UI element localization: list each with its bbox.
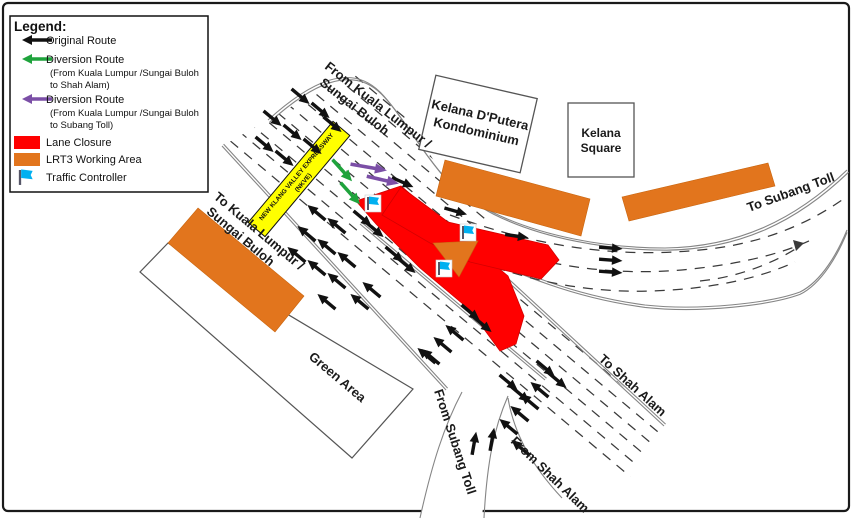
kelana-square-building: Kelana Square: [568, 103, 634, 177]
legend-working-area: LRT3 Working Area: [46, 154, 142, 166]
legend: Legend: Original Route Diversion Route (…: [10, 16, 208, 192]
svg-text:Square: Square: [581, 141, 622, 155]
traffic-controller-flag: [365, 195, 381, 212]
legend-diversion-subang-sub1: (From Kuala Lumpur /Sungai Buloh: [50, 108, 199, 119]
legend-diversion-shah-sub2: to Shah Alam): [50, 80, 110, 91]
traffic-arrows-to-subang: [599, 242, 623, 277]
traffic-diversion-diagram: Green Area NEW KLANG VALLEY EXPRESSWAY (…: [0, 0, 855, 520]
legend-lane-closure: Lane Closure: [46, 137, 111, 149]
lane-closure-swatch: [14, 136, 40, 149]
traffic-controller-flag: [436, 260, 452, 277]
traffic-controller-flag: [460, 224, 476, 241]
legend-diversion-subang-sub2: to Subang Toll): [50, 120, 113, 131]
diagram-canvas: Green Area NEW KLANG VALLEY EXPRESSWAY (…: [0, 0, 855, 520]
legend-diversion-shah: Diversion Route: [46, 54, 124, 66]
working-area-swatch: [14, 153, 40, 166]
legend-diversion-shah-sub1: (From Kuala Lumpur /Sungai Buloh: [50, 68, 199, 79]
legend-diversion-subang: Diversion Route: [46, 94, 124, 106]
legend-title: Legend:: [14, 19, 67, 34]
legend-traffic-controller: Traffic Controller: [46, 172, 127, 184]
svg-text:Kelana: Kelana: [581, 126, 621, 140]
legend-original-route: Original Route: [46, 35, 116, 47]
